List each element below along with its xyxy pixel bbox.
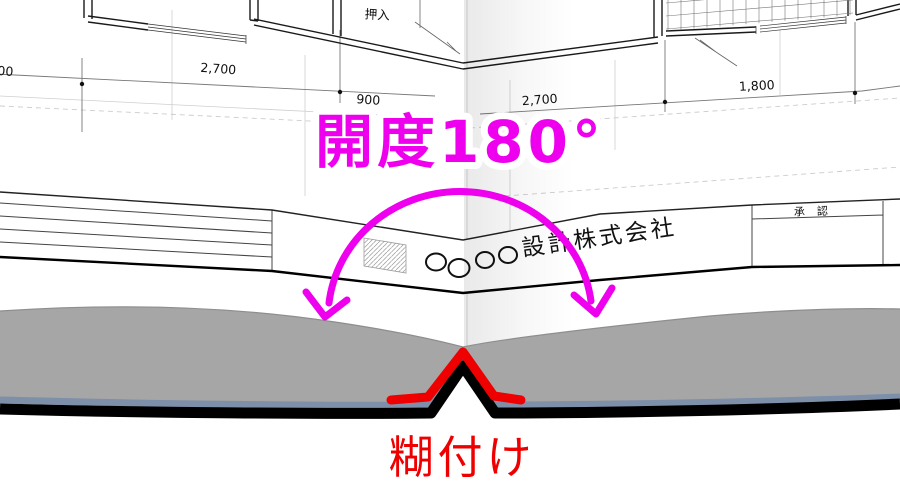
opening-angle-text: 開度180° <box>315 108 605 176</box>
book-binding-diagram: 押入 00 2,700 900 2,700 1,800 承認 設計株式会社 <box>0 0 900 500</box>
approval-label: 承認 <box>794 203 840 219</box>
dim-top-right: 1,800 <box>738 77 775 94</box>
closet-label: 押入 <box>364 6 390 22</box>
opening-angle-title: 開度180° 開度180° <box>315 108 605 176</box>
dim-top-left: 2,700 <box>200 60 237 77</box>
dim-left-clipped: 00 <box>0 63 14 79</box>
glue-label: 糊付け <box>388 431 535 484</box>
dim-mid-clipped: 900 <box>356 91 381 108</box>
diagram-canvas: 押入 00 2,700 900 2,700 1,800 承認 設計株式会社 <box>0 0 900 500</box>
